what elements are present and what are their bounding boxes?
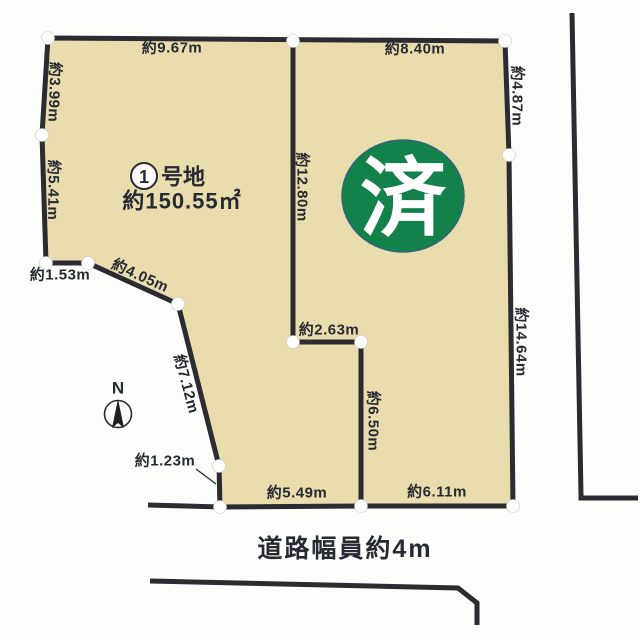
lot-area: 約150.55㎡ bbox=[122, 189, 241, 214]
measurement-bottom-left: 約5.49m bbox=[267, 484, 328, 502]
measurement-notch-vertical: 約1.23m bbox=[135, 452, 196, 470]
measurement-top-right: 約8.40m bbox=[385, 40, 446, 58]
lot-number: 1 bbox=[139, 167, 149, 187]
measurement-divider-lower-vertical: 約6.50m bbox=[365, 391, 383, 452]
measurement-bottom-right: 約6.11m bbox=[407, 483, 467, 501]
lot-name-suffix: 号地 bbox=[161, 165, 205, 190]
north-compass-icon: N bbox=[105, 379, 132, 429]
measurement-right-upper: 約4.87m bbox=[509, 66, 527, 127]
road-edge-bottom bbox=[150, 581, 477, 625]
measurement-divider-vertical: 約12.80m bbox=[294, 152, 312, 221]
compass-north-label: N bbox=[112, 379, 124, 398]
plot-drawing-svg: 済 1 号地 約150.55㎡ 約9.67m 約8.40m 約3.99m 約5.… bbox=[0, 0, 640, 640]
notch-leader-line bbox=[196, 469, 216, 484]
measurement-left-lower: 約5.41m bbox=[44, 160, 63, 221]
vertex-dot bbox=[36, 129, 49, 142]
vertex-dot bbox=[287, 336, 300, 349]
vertex-dot bbox=[355, 500, 368, 513]
vertex-dot bbox=[213, 460, 226, 473]
measurement-right-lower: 約14.64m bbox=[513, 307, 531, 376]
sold-stamp: 済 bbox=[342, 140, 464, 252]
vertex-dot bbox=[214, 501, 227, 514]
vertex-dot bbox=[499, 35, 512, 48]
road-width-label: 道路幅員約4m bbox=[257, 534, 432, 563]
measurement-notch-left: 約1.53m bbox=[30, 266, 91, 284]
road-edge-right bbox=[572, 13, 638, 498]
measurement-top-left: 約9.67m bbox=[142, 39, 203, 57]
sold-stamp-text: 済 bbox=[360, 151, 447, 247]
compass-needle bbox=[112, 399, 124, 428]
land-plot-diagram: 済 1 号地 約150.55㎡ 約9.67m 約8.40m 約3.99m 約5.… bbox=[0, 0, 640, 640]
vertex-dot bbox=[287, 35, 300, 48]
road-edge-left-segment bbox=[148, 505, 222, 507]
vertex-dot bbox=[172, 298, 185, 311]
vertex-dot bbox=[507, 500, 520, 513]
measurement-divider-horizontal: 約2.63m bbox=[299, 321, 360, 339]
vertex-dot bbox=[503, 149, 516, 162]
vertex-dot bbox=[42, 32, 55, 45]
measurement-left-upper: 約3.99m bbox=[44, 61, 64, 122]
